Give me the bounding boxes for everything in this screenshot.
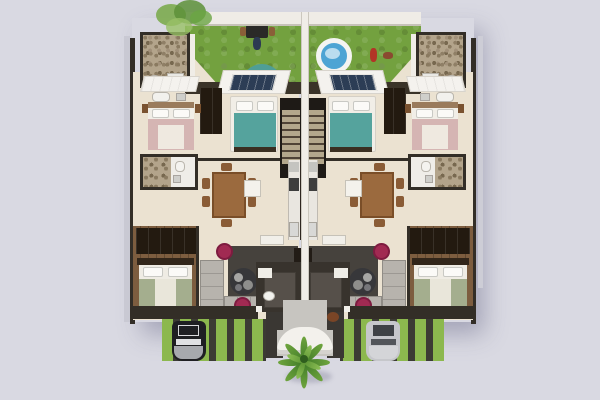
stove xyxy=(289,178,299,191)
pool-water-glint xyxy=(325,48,340,59)
duvet xyxy=(330,113,372,147)
pillow xyxy=(353,101,370,111)
table-plate xyxy=(353,280,363,290)
pillow xyxy=(443,267,463,277)
nightstand xyxy=(195,104,201,113)
fridge xyxy=(289,222,299,237)
table-plate xyxy=(364,284,371,291)
pillow xyxy=(143,267,163,277)
dining-chair xyxy=(221,219,232,227)
storage-box xyxy=(258,268,272,278)
car-hood xyxy=(369,346,398,359)
dining-chair xyxy=(374,163,385,171)
pillow xyxy=(416,109,433,118)
table-plate xyxy=(243,280,253,290)
toilet-icon xyxy=(421,161,431,172)
console-cabinet xyxy=(260,235,284,245)
pillar xyxy=(344,306,350,312)
duvet-fold xyxy=(158,125,184,149)
roof-overhang xyxy=(140,76,200,92)
sink xyxy=(425,175,433,183)
roof-overhang xyxy=(315,70,389,94)
table-plate xyxy=(363,273,372,282)
pillar xyxy=(256,306,262,312)
interior-wall xyxy=(198,158,280,161)
wardrobe xyxy=(136,228,196,254)
pillow xyxy=(152,109,169,118)
pillow xyxy=(236,101,253,111)
magenta-pouf xyxy=(216,243,233,260)
bathroom xyxy=(408,154,466,190)
dining-chair xyxy=(202,178,210,189)
person-figure xyxy=(370,48,377,62)
roof-overhang xyxy=(217,70,291,94)
interior-wall xyxy=(326,158,408,161)
car-windshield xyxy=(176,339,201,345)
party-wall xyxy=(301,12,309,308)
coffee-table xyxy=(230,268,257,295)
storage-box xyxy=(334,268,348,278)
sofa xyxy=(200,260,224,312)
dining-chair xyxy=(221,163,232,171)
yard-chair xyxy=(240,27,246,36)
sink xyxy=(420,93,430,101)
brown-dog-figure xyxy=(327,312,339,322)
bathtub xyxy=(436,92,454,102)
right-unit xyxy=(303,12,478,362)
table-plate xyxy=(234,273,243,282)
sink xyxy=(173,175,181,183)
parked-car-silver xyxy=(366,321,400,361)
footboard xyxy=(234,147,276,152)
left-unit xyxy=(128,12,303,362)
interior-wall xyxy=(196,226,199,318)
car-hood xyxy=(174,346,203,359)
car-sunroof xyxy=(373,325,394,336)
stone-accent-wall xyxy=(143,157,171,187)
palm-tree xyxy=(278,336,330,388)
dining-chair xyxy=(374,219,385,227)
nightstand xyxy=(405,104,411,113)
dining-chair xyxy=(248,196,256,207)
kitchen-sink xyxy=(289,162,299,172)
pillow xyxy=(168,267,188,277)
outer-wall xyxy=(130,306,258,319)
pillow xyxy=(418,267,438,277)
person-figure xyxy=(253,37,261,50)
coffee-table xyxy=(349,268,376,295)
yard-chair xyxy=(269,27,275,36)
bathroom xyxy=(140,154,198,190)
dining-chair xyxy=(396,178,404,189)
headboard xyxy=(137,258,194,265)
kitchen-island xyxy=(345,180,362,197)
white-dog-figure xyxy=(263,291,275,301)
headboard xyxy=(412,258,469,265)
footboard xyxy=(330,147,372,152)
floor-plan-render xyxy=(0,0,600,400)
car-sunroof xyxy=(178,325,199,336)
nightstand xyxy=(458,104,464,113)
garden-tree xyxy=(166,18,192,36)
teal-bed xyxy=(230,96,278,152)
dining-chair xyxy=(202,196,210,207)
wardrobe xyxy=(410,228,470,254)
roof-overhang xyxy=(406,76,466,92)
duvet xyxy=(234,113,276,147)
palm-trunk-top xyxy=(300,355,308,363)
solar-panel xyxy=(229,74,277,91)
right-outer-wall-face xyxy=(478,36,483,288)
headboard xyxy=(148,102,194,108)
sink xyxy=(176,93,186,101)
yard-animal-figure xyxy=(383,52,393,59)
toilet-icon xyxy=(175,161,185,172)
swimming-pool xyxy=(316,38,352,74)
outer-wall xyxy=(348,306,476,319)
garden-tree xyxy=(190,10,212,26)
dining-table xyxy=(360,172,394,218)
car-windshield xyxy=(371,339,396,345)
pillow xyxy=(257,101,274,111)
console-cabinet xyxy=(322,235,346,245)
dining-chair xyxy=(396,196,404,207)
pillow xyxy=(332,101,349,111)
pink-bed xyxy=(412,102,458,150)
duvet-fold xyxy=(422,125,448,149)
solar-panel xyxy=(329,74,377,91)
kitchen-island xyxy=(244,180,261,197)
stair-treads xyxy=(282,110,300,164)
stone-accent-wall xyxy=(435,157,463,187)
sofa xyxy=(382,260,406,312)
pink-bed xyxy=(148,102,194,150)
pillow xyxy=(437,109,454,118)
wardrobe xyxy=(200,88,222,134)
headboard xyxy=(412,102,458,108)
nightstand xyxy=(142,104,148,113)
pillow xyxy=(173,109,190,118)
dining-chair xyxy=(350,196,358,207)
bathtub xyxy=(152,92,170,102)
magenta-pouf xyxy=(373,243,390,260)
teal-bed xyxy=(328,96,376,152)
parked-car-dark xyxy=(172,321,206,361)
dining-table xyxy=(212,172,246,218)
wardrobe xyxy=(384,88,406,134)
table-plate xyxy=(235,284,242,291)
